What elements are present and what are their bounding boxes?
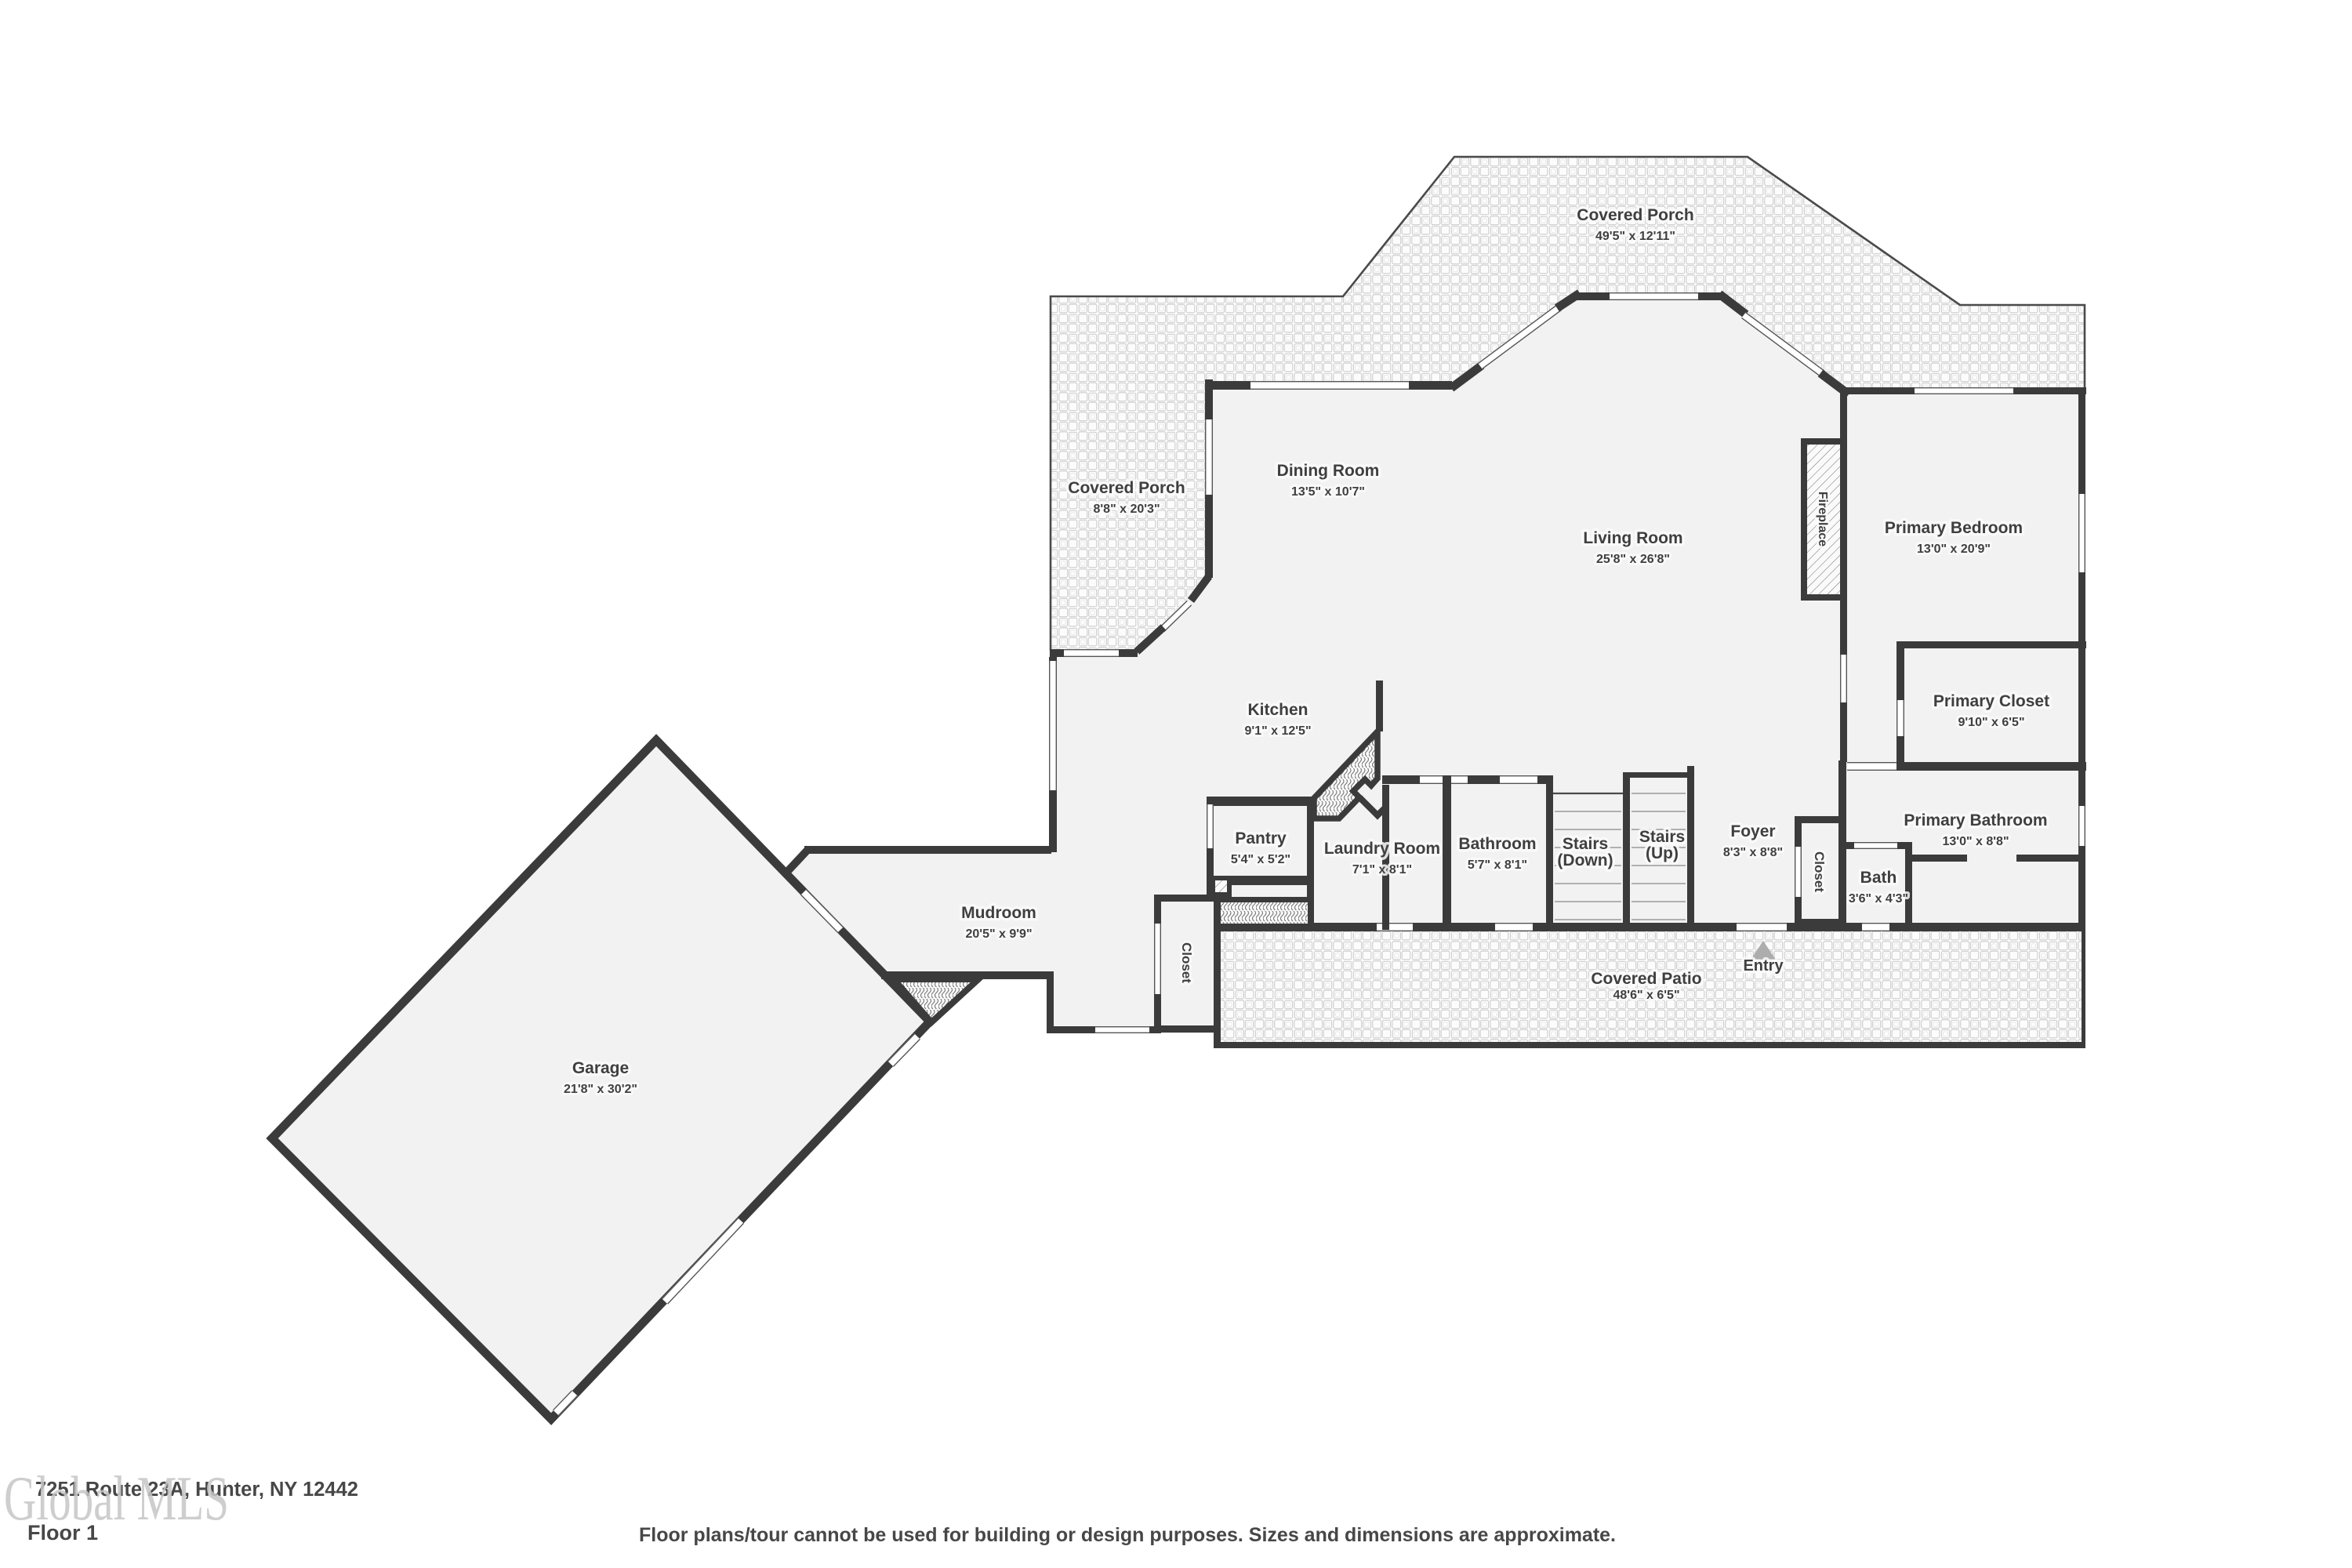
svg-text:13'0" x 20'9": 13'0" x 20'9" bbox=[1917, 543, 1991, 556]
svg-text:Primary Bedroom: Primary Bedroom bbox=[1885, 519, 2023, 537]
svg-text:(Up): (Up) bbox=[1646, 844, 1679, 862]
svg-text:49'5" x 12'11": 49'5" x 12'11" bbox=[1595, 230, 1675, 243]
svg-text:Stairs: Stairs bbox=[1639, 828, 1685, 846]
svg-text:Pantry: Pantry bbox=[1235, 829, 1287, 848]
svg-text:9'1" x 12'5": 9'1" x 12'5" bbox=[1244, 724, 1311, 738]
svg-text:21'8" x 30'2": 21'8" x 30'2" bbox=[564, 1083, 637, 1096]
svg-text:9'10" x 6'5": 9'10" x 6'5" bbox=[1958, 716, 2024, 729]
svg-text:Dining Room: Dining Room bbox=[1277, 462, 1380, 480]
svg-text:25'8" x 26'8": 25'8" x 26'8" bbox=[1596, 553, 1670, 566]
svg-text:Garage: Garage bbox=[572, 1059, 629, 1077]
svg-text:Primary Bathroom: Primary Bathroom bbox=[1904, 811, 2047, 829]
svg-text:48'6" x 6'5": 48'6" x 6'5" bbox=[1613, 989, 1679, 1002]
svg-text:Living Room: Living Room bbox=[1583, 529, 1682, 547]
svg-text:Bath: Bath bbox=[1860, 869, 1897, 887]
svg-text:(Down): (Down) bbox=[1557, 851, 1613, 869]
svg-text:Fireplace: Fireplace bbox=[1816, 492, 1829, 546]
svg-text:Floor plans/tour cannot be use: Floor plans/tour cannot be used for buil… bbox=[639, 1524, 1616, 1546]
svg-text:20'5" x 9'9": 20'5" x 9'9" bbox=[965, 927, 1032, 941]
svg-text:Foyer: Foyer bbox=[1730, 822, 1775, 840]
svg-text:Covered Porch: Covered Porch bbox=[1577, 206, 1693, 224]
svg-text:5'4" x 5'2": 5'4" x 5'2" bbox=[1231, 853, 1290, 866]
svg-text:Closet: Closet bbox=[1812, 851, 1827, 892]
svg-text:Covered Patio: Covered Patio bbox=[1591, 970, 1701, 988]
svg-text:Bathroom: Bathroom bbox=[1458, 835, 1536, 853]
svg-text:8'3" x 8'8": 8'3" x 8'8" bbox=[1723, 846, 1783, 859]
svg-text:Laundry Room: Laundry Room bbox=[1324, 840, 1440, 858]
svg-text:5'7" x 8'1": 5'7" x 8'1" bbox=[1468, 858, 1527, 872]
svg-text:Stairs: Stairs bbox=[1563, 835, 1608, 853]
svg-text:Primary Closet: Primary Closet bbox=[1933, 692, 2049, 710]
svg-text:8'8" x 20'3": 8'8" x 20'3" bbox=[1093, 503, 1160, 516]
svg-text:13'5" x 10'7": 13'5" x 10'7" bbox=[1291, 485, 1365, 499]
svg-text:Closet: Closet bbox=[1179, 942, 1194, 983]
svg-text:3'6" x 4'3": 3'6" x 4'3" bbox=[1849, 892, 1908, 906]
svg-text:7'1" x 8'1": 7'1" x 8'1" bbox=[1352, 863, 1412, 877]
svg-text:Kitchen: Kitchen bbox=[1247, 701, 1308, 719]
svg-text:13'0" x 8'8": 13'0" x 8'8" bbox=[1942, 835, 2009, 848]
svg-text:Floor 1: Floor 1 bbox=[27, 1521, 98, 1544]
svg-text:Entry: Entry bbox=[1743, 957, 1784, 975]
svg-text:Mudroom: Mudroom bbox=[961, 904, 1036, 922]
svg-text:Covered Porch: Covered Porch bbox=[1068, 479, 1185, 497]
